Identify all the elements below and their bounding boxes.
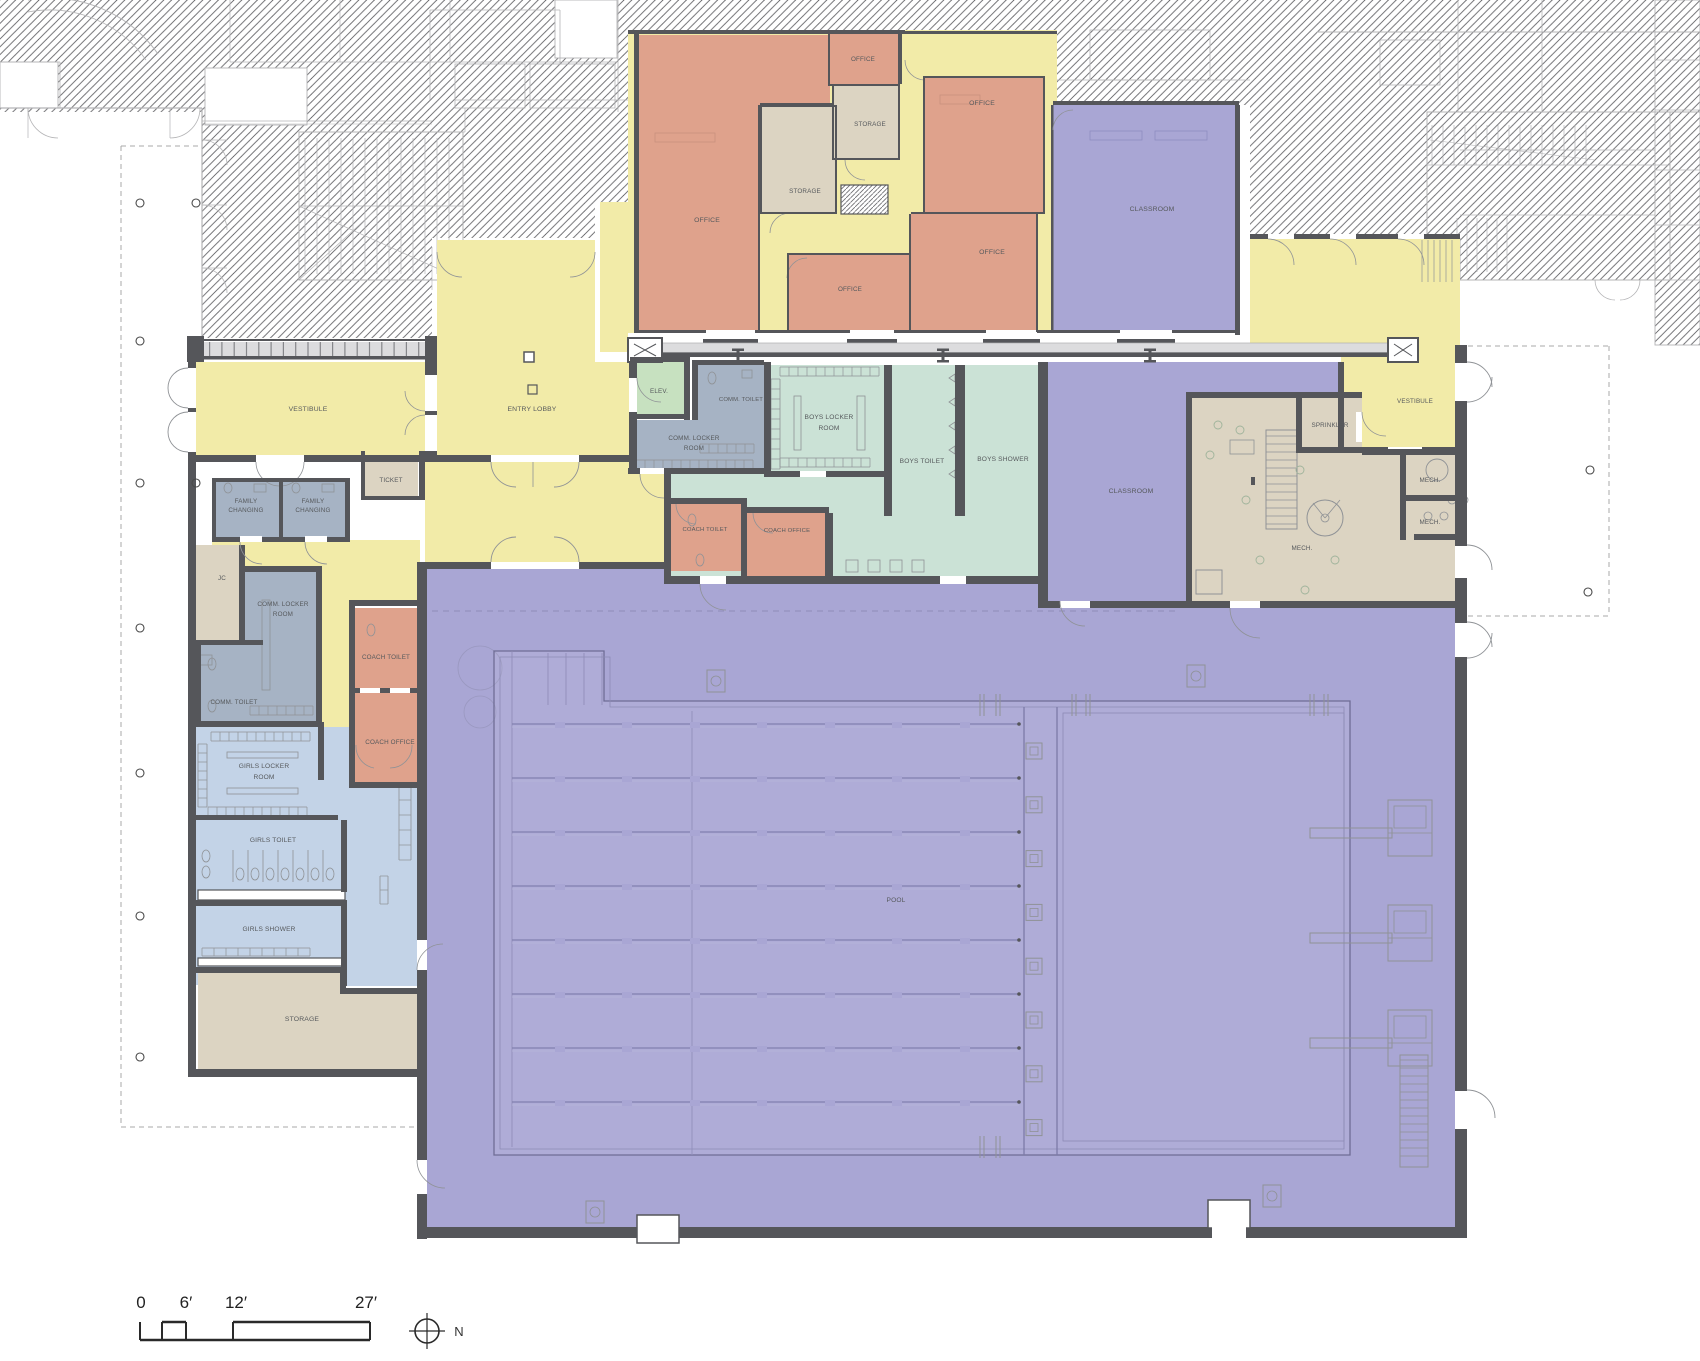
svg-text:COMM. TOILET: COMM. TOILET (210, 699, 257, 706)
svg-text:COACH OFFICE: COACH OFFICE (764, 528, 810, 534)
svg-text:GIRLS SHOWER: GIRLS SHOWER (242, 926, 295, 933)
svg-text:OFFICE: OFFICE (694, 217, 720, 224)
svg-text:GIRLS LOCKER: GIRLS LOCKER (239, 763, 290, 770)
svg-text:MECH.: MECH. (1419, 477, 1440, 484)
svg-text:TICKET: TICKET (379, 477, 402, 484)
svg-text:27′: 27′ (355, 1293, 377, 1312)
svg-text:CLASSROOM: CLASSROOM (1109, 488, 1154, 495)
svg-text:VESTIBULE: VESTIBULE (289, 406, 328, 413)
svg-text:POOL: POOL (887, 897, 906, 904)
svg-text:CLASSROOM: CLASSROOM (1130, 206, 1175, 213)
svg-text:FAMILY: FAMILY (235, 498, 258, 505)
svg-text:ROOM: ROOM (684, 445, 704, 452)
svg-text:COACH TOILET: COACH TOILET (682, 527, 727, 533)
svg-text:COMM. TOILET: COMM. TOILET (719, 397, 763, 403)
svg-text:MECH.: MECH. (1419, 519, 1440, 526)
svg-text:GIRLS TOILET: GIRLS TOILET (250, 837, 296, 844)
svg-text:CHANGING: CHANGING (228, 507, 263, 514)
svg-text:STORAGE: STORAGE (854, 121, 886, 128)
svg-text:STORAGE: STORAGE (285, 1016, 319, 1023)
svg-text:COMM. LOCKER: COMM. LOCKER (668, 435, 719, 442)
svg-text:COACH TOILET: COACH TOILET (362, 654, 410, 661)
svg-text:OFFICE: OFFICE (969, 100, 995, 107)
svg-text:ROOM: ROOM (273, 611, 293, 618)
svg-text:N: N (454, 1324, 463, 1339)
svg-text:BOYS SHOWER: BOYS SHOWER (977, 456, 1029, 463)
svg-text:SPRINKLER: SPRINKLER (1311, 422, 1348, 429)
svg-text:COACH OFFICE: COACH OFFICE (365, 739, 414, 746)
svg-text:CHANGING: CHANGING (295, 507, 330, 514)
svg-text:12′: 12′ (225, 1293, 247, 1312)
svg-text:STORAGE: STORAGE (789, 188, 821, 195)
svg-text:ENTRY LOBBY: ENTRY LOBBY (508, 406, 557, 413)
svg-text:ROOM: ROOM (818, 425, 839, 432)
svg-text:OFFICE: OFFICE (979, 249, 1005, 256)
svg-text:COMM. LOCKER: COMM. LOCKER (257, 601, 308, 608)
svg-text:6′: 6′ (180, 1293, 193, 1312)
svg-text:OFFICE: OFFICE (838, 286, 862, 293)
svg-text:BOYS LOCKER: BOYS LOCKER (805, 414, 854, 421)
svg-text:OFFICE: OFFICE (851, 56, 875, 63)
svg-text:ELEV.: ELEV. (650, 388, 668, 395)
svg-text:ROOM: ROOM (253, 774, 274, 781)
svg-text:0: 0 (136, 1293, 145, 1312)
svg-text:BOYS TOILET: BOYS TOILET (900, 458, 945, 465)
svg-text:FAMILY: FAMILY (302, 498, 325, 505)
svg-text:VESTIBULE: VESTIBULE (1397, 398, 1433, 405)
svg-text:JC: JC (218, 575, 226, 582)
svg-text:MECH.: MECH. (1291, 545, 1312, 552)
